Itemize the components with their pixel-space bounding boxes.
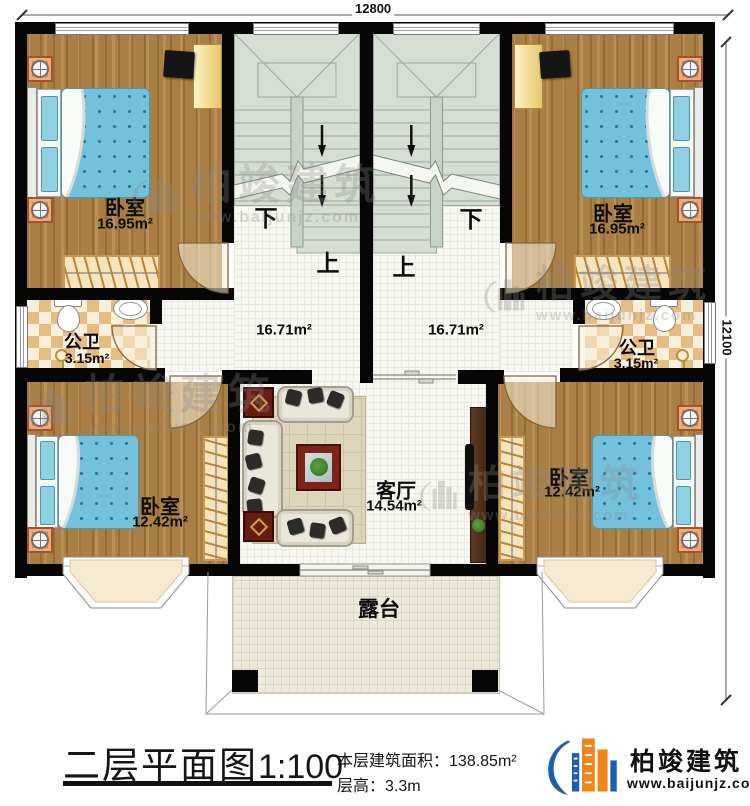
hall-left-area: 16.71m²: [256, 322, 312, 339]
bath-left-area: 3.15m²: [65, 350, 109, 366]
plan-overlay: [0, 0, 750, 806]
dimension-width: 12800: [352, 1, 394, 16]
floor-plan: 卧室 16.95m² 卧室 16.95m² 公卫 3.15m² 公卫 3.15m…: [0, 0, 750, 806]
plan-title-text: 二层平面图: [63, 745, 258, 786]
stair-up-label: 上: [393, 248, 416, 282]
brand-logo-icon: [538, 733, 626, 797]
floor-area-value: 138.85m²: [449, 753, 517, 770]
stair-up-label: 上: [317, 244, 340, 278]
floor-height-line: 层高：3.3m: [337, 772, 421, 796]
brand-url: www.baijunjz.com: [627, 775, 750, 791]
terrace-label: 露台: [358, 593, 400, 623]
stair-down-label: 下: [255, 199, 278, 233]
brand-name: 柏竣建筑: [630, 742, 742, 778]
bedroom-tr-area: 16.95m²: [589, 221, 645, 238]
hall-right-area: 16.71m²: [428, 322, 484, 339]
floor-height-label: 层高：: [337, 778, 385, 795]
bedroom-bl-area: 12.42m²: [132, 514, 188, 531]
dimension-depth: 12100: [720, 316, 735, 358]
title-underline: [63, 781, 332, 786]
living-area: 14.54m²: [366, 498, 422, 515]
bath-right-area: 3.15m²: [614, 355, 658, 371]
bedroom-tl-area: 16.95m²: [97, 216, 153, 233]
floor-area-line: 本层建筑面积：138.85m²: [337, 747, 517, 771]
bedroom-br-area: 12.42m²: [544, 484, 600, 501]
stair-down-label: 下: [460, 200, 483, 234]
floor-area-label: 本层建筑面积：: [337, 753, 449, 770]
floor-height-value: 3.3m: [385, 778, 421, 795]
